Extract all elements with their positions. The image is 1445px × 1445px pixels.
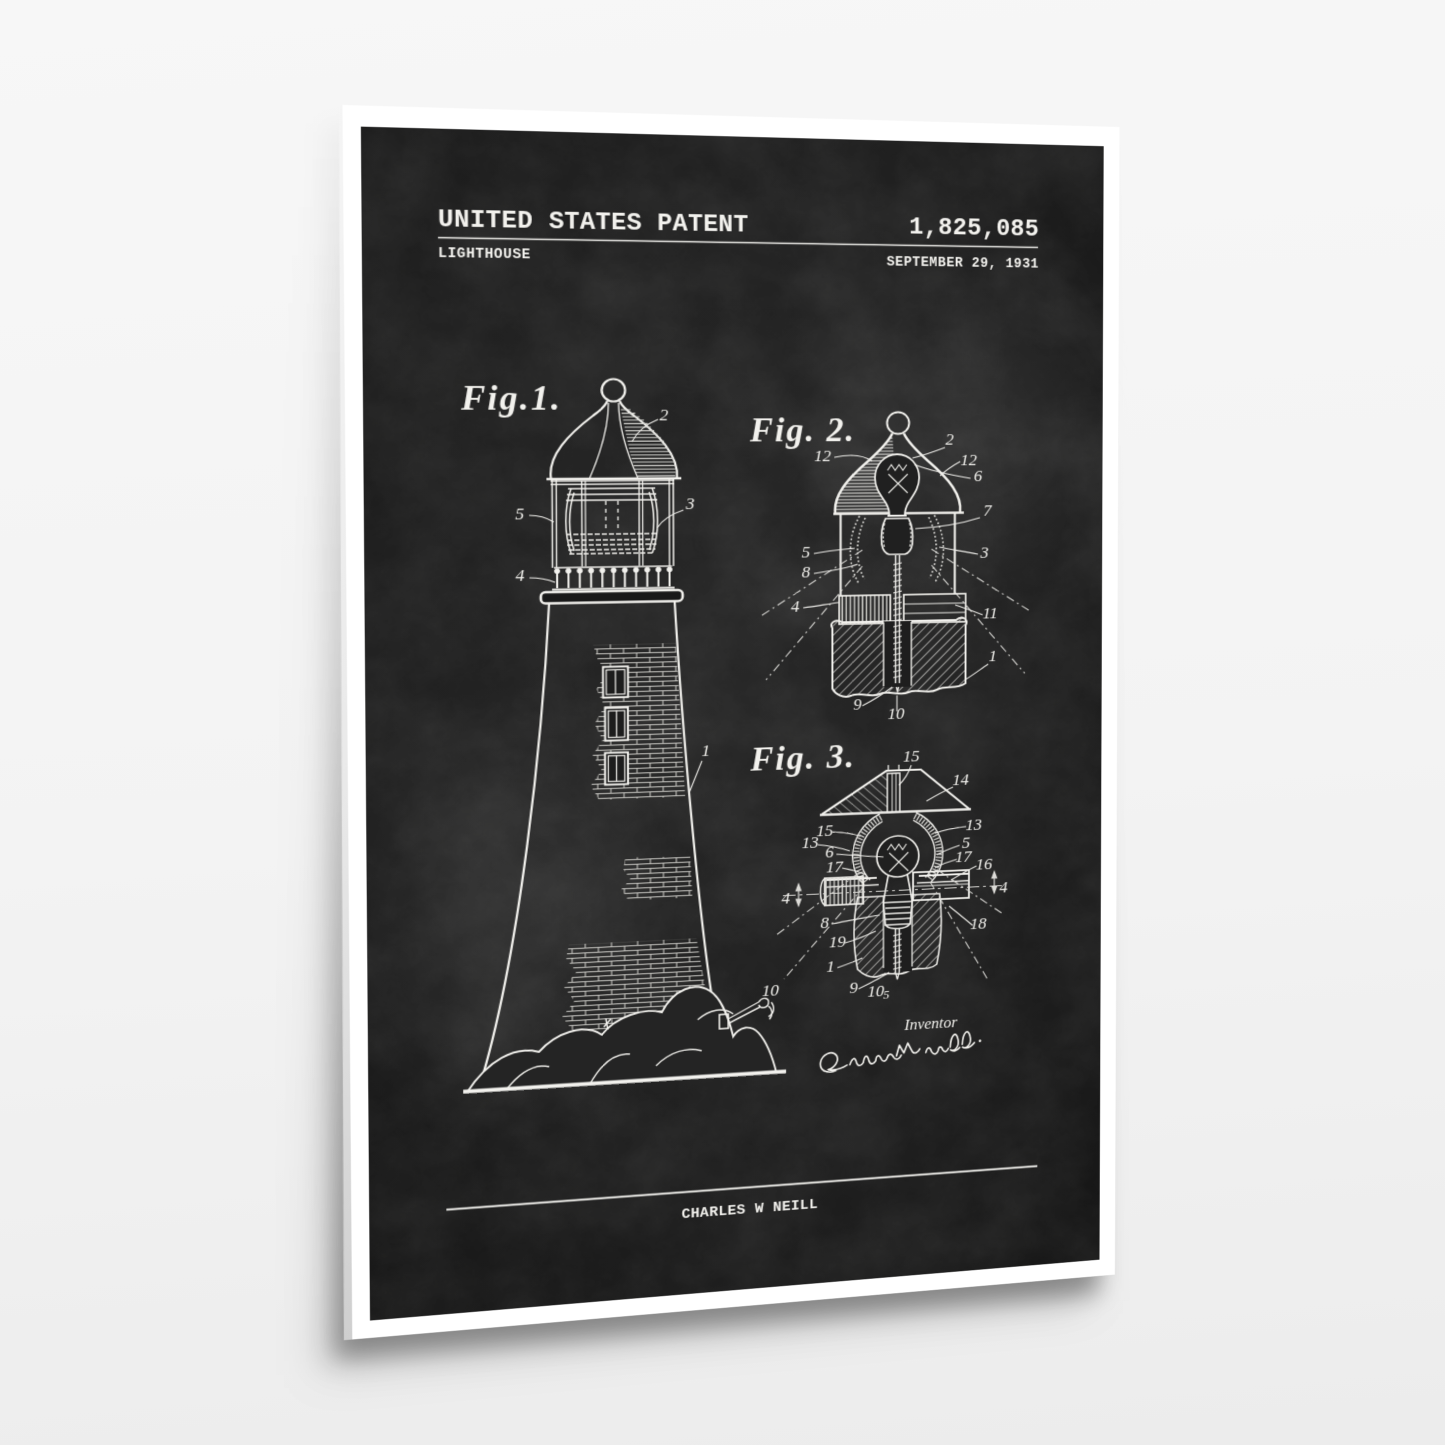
- svg-text:13: 13: [802, 833, 819, 852]
- svg-text:18: 18: [970, 914, 987, 933]
- svg-text:5: 5: [515, 505, 524, 524]
- svg-text:6: 6: [974, 467, 983, 486]
- svg-text:LIGHTHOUSE: LIGHTHOUSE: [438, 247, 531, 263]
- svg-text:3: 3: [685, 494, 695, 513]
- svg-text:Inventor: Inventor: [904, 1013, 958, 1034]
- svg-text:5: 5: [883, 988, 889, 1002]
- svg-text:7: 7: [983, 502, 992, 521]
- svg-text:5: 5: [802, 543, 811, 562]
- svg-text:10: 10: [867, 982, 884, 1001]
- svg-text:4: 4: [1000, 878, 1008, 897]
- svg-text:15: 15: [903, 747, 920, 766]
- svg-text:11: 11: [983, 604, 998, 623]
- svg-text:14: 14: [952, 771, 969, 790]
- svg-text:9: 9: [853, 695, 861, 714]
- svg-text:4: 4: [516, 566, 525, 585]
- svg-text:9: 9: [850, 979, 858, 998]
- svg-text:12: 12: [814, 447, 831, 466]
- svg-text:8: 8: [821, 914, 830, 933]
- svg-text:Fig. 2.: Fig. 2.: [749, 412, 856, 449]
- svg-text:2: 2: [660, 406, 669, 425]
- svg-text:1: 1: [826, 957, 834, 976]
- svg-text:1: 1: [989, 647, 997, 666]
- svg-text:1: 1: [702, 741, 711, 760]
- svg-text:1,825,085: 1,825,085: [909, 214, 1039, 243]
- svg-text:4: 4: [791, 597, 800, 616]
- svg-text:13: 13: [965, 816, 981, 835]
- svg-text:10: 10: [888, 704, 905, 723]
- svg-text:Fig. 3.: Fig. 3.: [749, 739, 855, 779]
- svg-text:SEPTEMBER 29, 1931: SEPTEMBER 29, 1931: [887, 256, 1039, 272]
- svg-text:8: 8: [802, 563, 811, 582]
- svg-text:3: 3: [980, 544, 989, 563]
- svg-text:16: 16: [976, 855, 993, 874]
- svg-text:19: 19: [829, 933, 846, 952]
- svg-text:4: 4: [782, 889, 791, 908]
- svg-text:15: 15: [816, 821, 833, 840]
- svg-text:17: 17: [826, 858, 844, 877]
- svg-text:17: 17: [955, 847, 972, 866]
- svg-text:Fig.1.: Fig.1.: [460, 380, 562, 418]
- svg-text:UNITED STATES PATENT: UNITED STATES PATENT: [438, 206, 749, 239]
- svg-text:2: 2: [946, 430, 954, 449]
